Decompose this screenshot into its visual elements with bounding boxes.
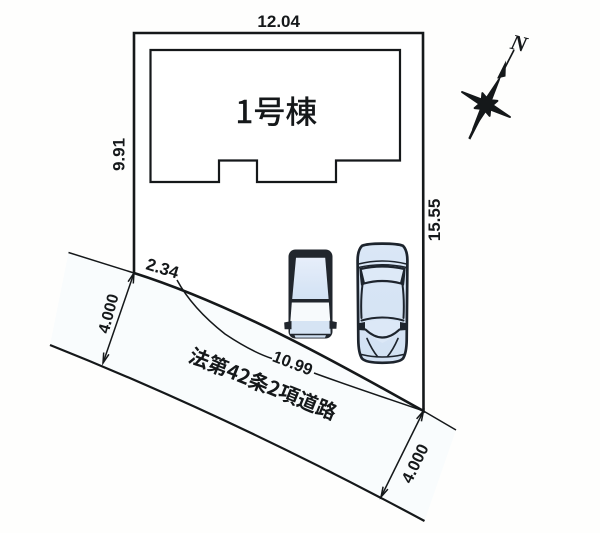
svg-text:12.04: 12.04	[257, 12, 300, 31]
svg-text:9.91: 9.91	[110, 138, 129, 171]
svg-text:15.55: 15.55	[425, 199, 444, 242]
